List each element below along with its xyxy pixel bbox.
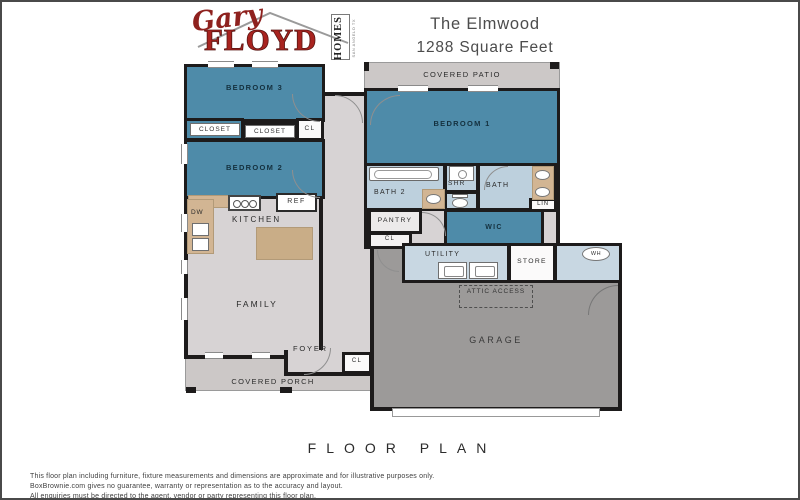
logo-tagline: SAN ANGELO TX xyxy=(351,19,356,57)
pantry-label: PANTRY xyxy=(368,217,422,224)
covered-patio-label: COVERED PATIO xyxy=(364,70,560,79)
window xyxy=(181,260,188,274)
washer-icon xyxy=(438,262,467,279)
porch-post xyxy=(280,387,292,393)
closet-b-plate: CLOSET xyxy=(245,125,295,138)
family-label: FAMILY xyxy=(202,299,312,309)
utility-label: UTILITY xyxy=(425,251,460,258)
plan-title-line1: The Elmwood xyxy=(385,13,585,37)
plan-title-line2: 1288 Square Feet xyxy=(385,37,585,59)
cl-foyer-label: CL xyxy=(342,358,372,364)
store-label: STORE xyxy=(508,258,556,265)
oven-icon xyxy=(192,238,209,251)
disclaimer-line2: BoxBrownie.com gives no guarantee, warra… xyxy=(30,482,770,492)
toilet-icon xyxy=(452,198,468,208)
bath-sink-icon xyxy=(535,170,550,180)
dishwasher-icon xyxy=(192,223,209,236)
water-heater-icon: WH xyxy=(582,247,610,261)
bath2-sink-icon xyxy=(426,194,441,204)
dryer-icon xyxy=(469,262,498,279)
window xyxy=(181,144,188,164)
bath2-label: BATH 2 xyxy=(374,189,406,196)
builder-logo: FLOYD Gary HOMES SAN ANGELO TX xyxy=(190,5,360,60)
closet-a-plate: CLOSET xyxy=(190,123,240,136)
bath-label: BATH xyxy=(486,182,509,189)
logo-homes-box: HOMES xyxy=(331,14,350,60)
bedroom3-label: BEDROOM 3 xyxy=(184,83,325,92)
window xyxy=(468,85,498,92)
bath-sink-icon xyxy=(535,187,550,197)
floor-plan-page: FLOYD Gary HOMES SAN ANGELO TX The Elmwo… xyxy=(0,0,800,500)
logo-homes-text: HOMES xyxy=(333,16,344,60)
cl-hall-label: CL xyxy=(296,125,324,132)
disclaimer-line3: All enquiries must be directed to the ag… xyxy=(30,492,770,500)
shower-label: SHR xyxy=(448,180,466,187)
garage-label: GARAGE xyxy=(370,335,622,345)
bedroom2-label: BEDROOM 2 xyxy=(184,163,325,172)
window xyxy=(252,352,270,359)
cl-pantry-label: CL xyxy=(368,236,412,242)
shower-pan-icon xyxy=(449,166,474,181)
window xyxy=(398,85,428,92)
window xyxy=(181,298,188,320)
covered-porch-label: COVERED PORCH xyxy=(188,377,358,386)
window xyxy=(252,61,278,68)
window xyxy=(208,61,234,68)
plan-title: The Elmwood 1288 Square Feet xyxy=(385,13,585,59)
window xyxy=(205,352,223,359)
kitchen-label: KITCHEN xyxy=(232,215,281,224)
kitchen-island xyxy=(256,227,313,260)
attic-access-hatch: ATTIC ACCESS xyxy=(459,285,533,308)
bedroom1-label: BEDROOM 1 xyxy=(364,119,560,128)
window xyxy=(181,214,188,232)
garage-door xyxy=(392,408,600,417)
wic-label: WIC xyxy=(444,224,544,231)
porch-post xyxy=(186,387,196,393)
disclaimer-line1: This floor plan including furniture, fix… xyxy=(30,472,770,482)
bathtub-icon xyxy=(369,167,439,181)
floor-plan-heading: FLOOR PLAN xyxy=(2,440,800,456)
toilet-tank-icon xyxy=(452,194,468,198)
foyer-label: FOYER xyxy=(293,344,328,353)
stove-icon xyxy=(228,195,261,211)
disclaimer: This floor plan including furniture, fix… xyxy=(30,472,770,500)
linen-label: LIN xyxy=(529,201,557,207)
dishwasher-label: DW xyxy=(191,209,203,216)
patio-wall-stub xyxy=(550,62,559,69)
